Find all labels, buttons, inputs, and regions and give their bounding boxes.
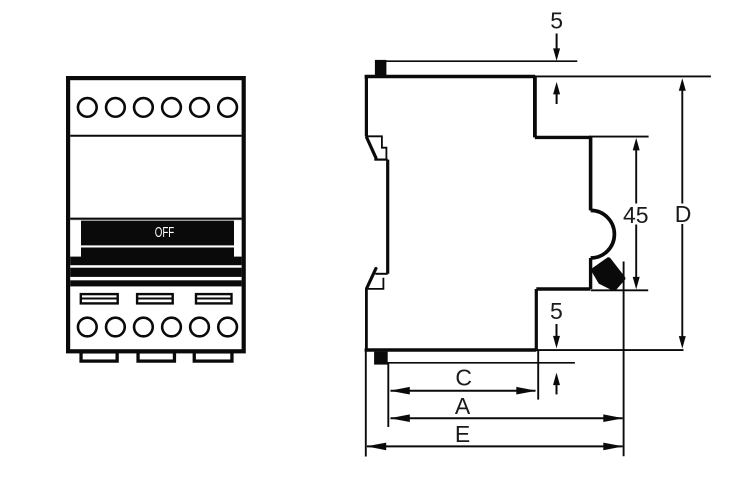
svg-text:D: D: [675, 201, 692, 227]
svg-text:5: 5: [550, 7, 563, 33]
svg-text:OFF: OFF: [155, 224, 175, 241]
svg-text:5: 5: [550, 298, 563, 324]
svg-text:45: 45: [623, 202, 649, 228]
svg-text:E: E: [455, 421, 470, 447]
svg-text:C: C: [455, 365, 472, 391]
svg-text:A: A: [455, 393, 471, 419]
